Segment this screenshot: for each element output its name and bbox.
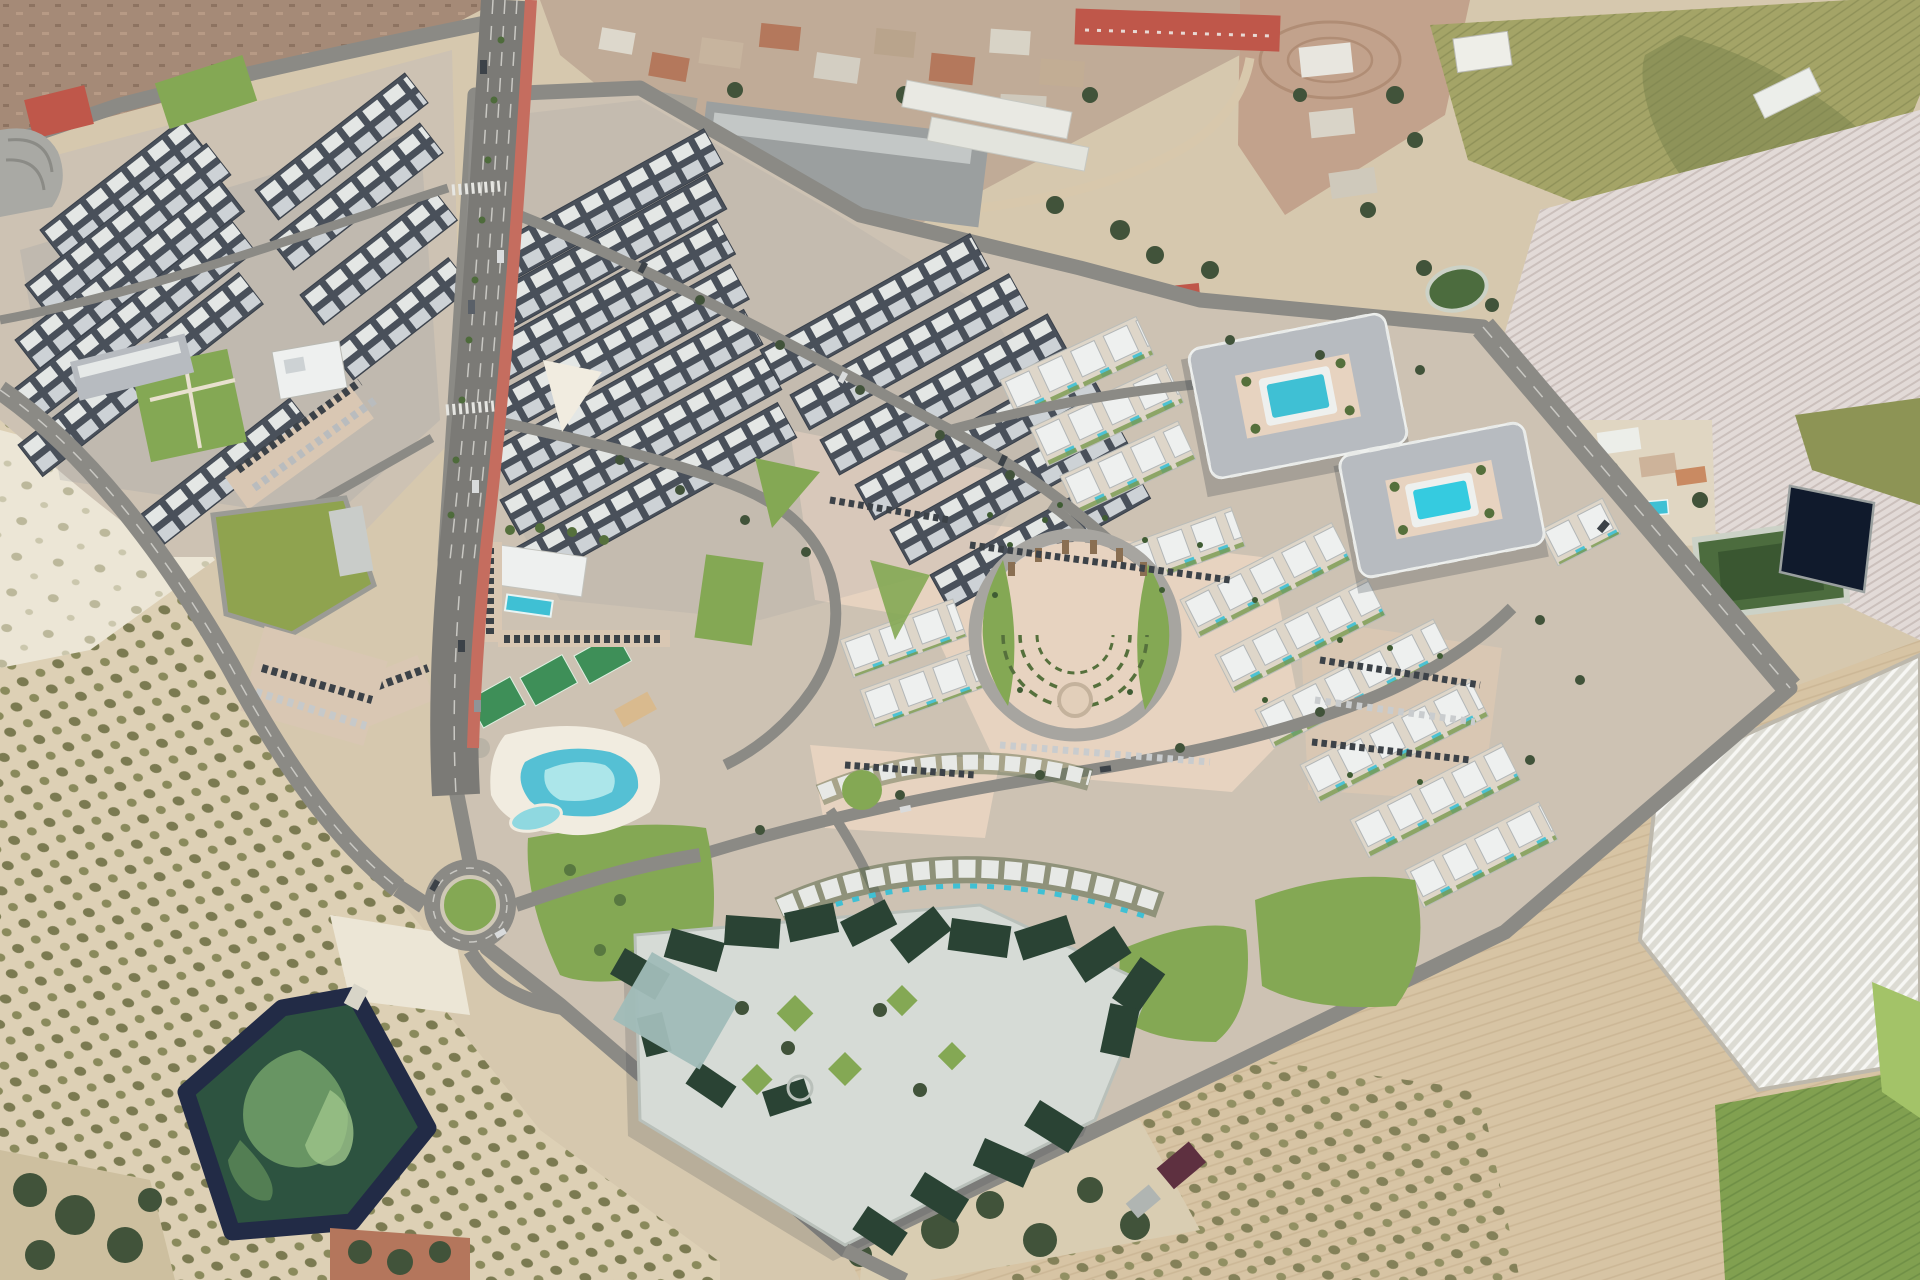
- lagoon-shallow: [544, 762, 614, 801]
- tree: [387, 1249, 413, 1275]
- lawn-rect: [694, 554, 763, 645]
- roundabout-island: [442, 877, 498, 933]
- aerial-photo: [0, 0, 1920, 1280]
- navy-pond: [1780, 486, 1874, 592]
- green-field-rows: [1715, 1068, 1920, 1280]
- round-lawn: [842, 770, 882, 810]
- aerial-scene: [0, 0, 1920, 1280]
- plaza-fountain: [1059, 684, 1091, 716]
- pond-tree: [1416, 260, 1432, 276]
- pond-tree: [1485, 298, 1499, 312]
- tree: [348, 1240, 372, 1264]
- south-lawn-east: [1255, 877, 1420, 1007]
- tree: [429, 1241, 451, 1263]
- red-shed-row: [1074, 8, 1280, 51]
